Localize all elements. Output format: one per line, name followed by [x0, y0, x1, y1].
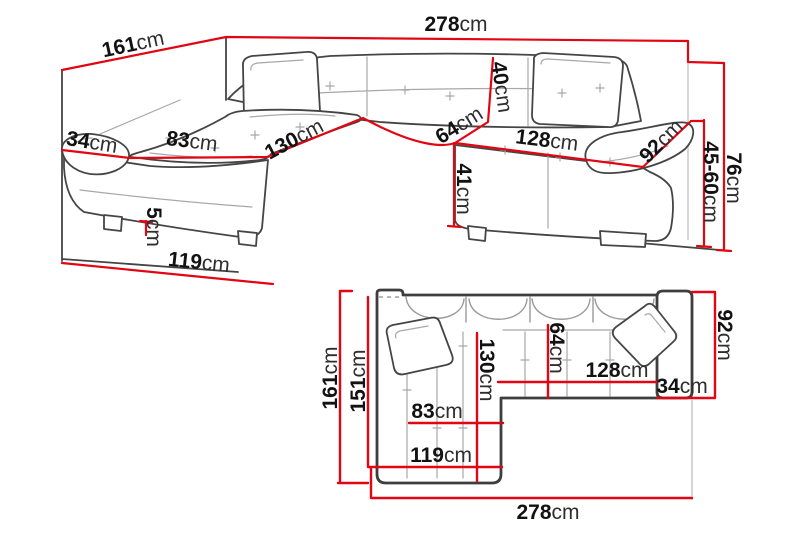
dim-width-total-label: 278cm — [424, 13, 487, 36]
perspective-view: 278cm 161cm 40cm 64cm 128cm 92cm 76cm 45… — [62, 13, 746, 285]
dim-chaise-front-width-label: 119cm — [167, 247, 231, 276]
plan-seat-depth-label: 64cm — [546, 322, 569, 373]
dim-height-total-label: 76cm — [723, 152, 746, 203]
pillow-right — [532, 53, 623, 127]
dim-seat-height-label: 41cm — [453, 163, 476, 214]
plan-width-total-label: 278cm — [516, 501, 579, 524]
plan-chaise-length-label: 130cm — [476, 338, 499, 401]
dim-seat-width-label: 128cm — [514, 125, 579, 156]
plan-chaise-seat-width-label: 83cm — [411, 400, 462, 423]
plan-depth-inner-label: 151cm — [347, 349, 370, 412]
plan-seat-width-label: 128cm — [585, 359, 648, 382]
plan-chaise-front-width-label: 119cm — [410, 444, 472, 467]
dim-armrest-height-label: 45-60cm — [700, 141, 723, 223]
plan-view: 161cm 151cm 130cm 64cm 128cm 34cm 92cm 8… — [319, 290, 737, 524]
sofa-dimensions-diagram: 278cm 161cm 40cm 64cm 128cm 92cm 76cm 45… — [0, 0, 800, 533]
diagram-canvas: 278cm 161cm 40cm 64cm 128cm 92cm 76cm 45… — [0, 0, 800, 533]
dim-leg-height-label: 5cm — [143, 207, 166, 247]
plan-armrest-width-label: 34cm — [656, 375, 707, 398]
plan-depth-total-label: 161cm — [319, 346, 342, 409]
plan-armrest-depth-label: 92cm — [714, 309, 737, 360]
